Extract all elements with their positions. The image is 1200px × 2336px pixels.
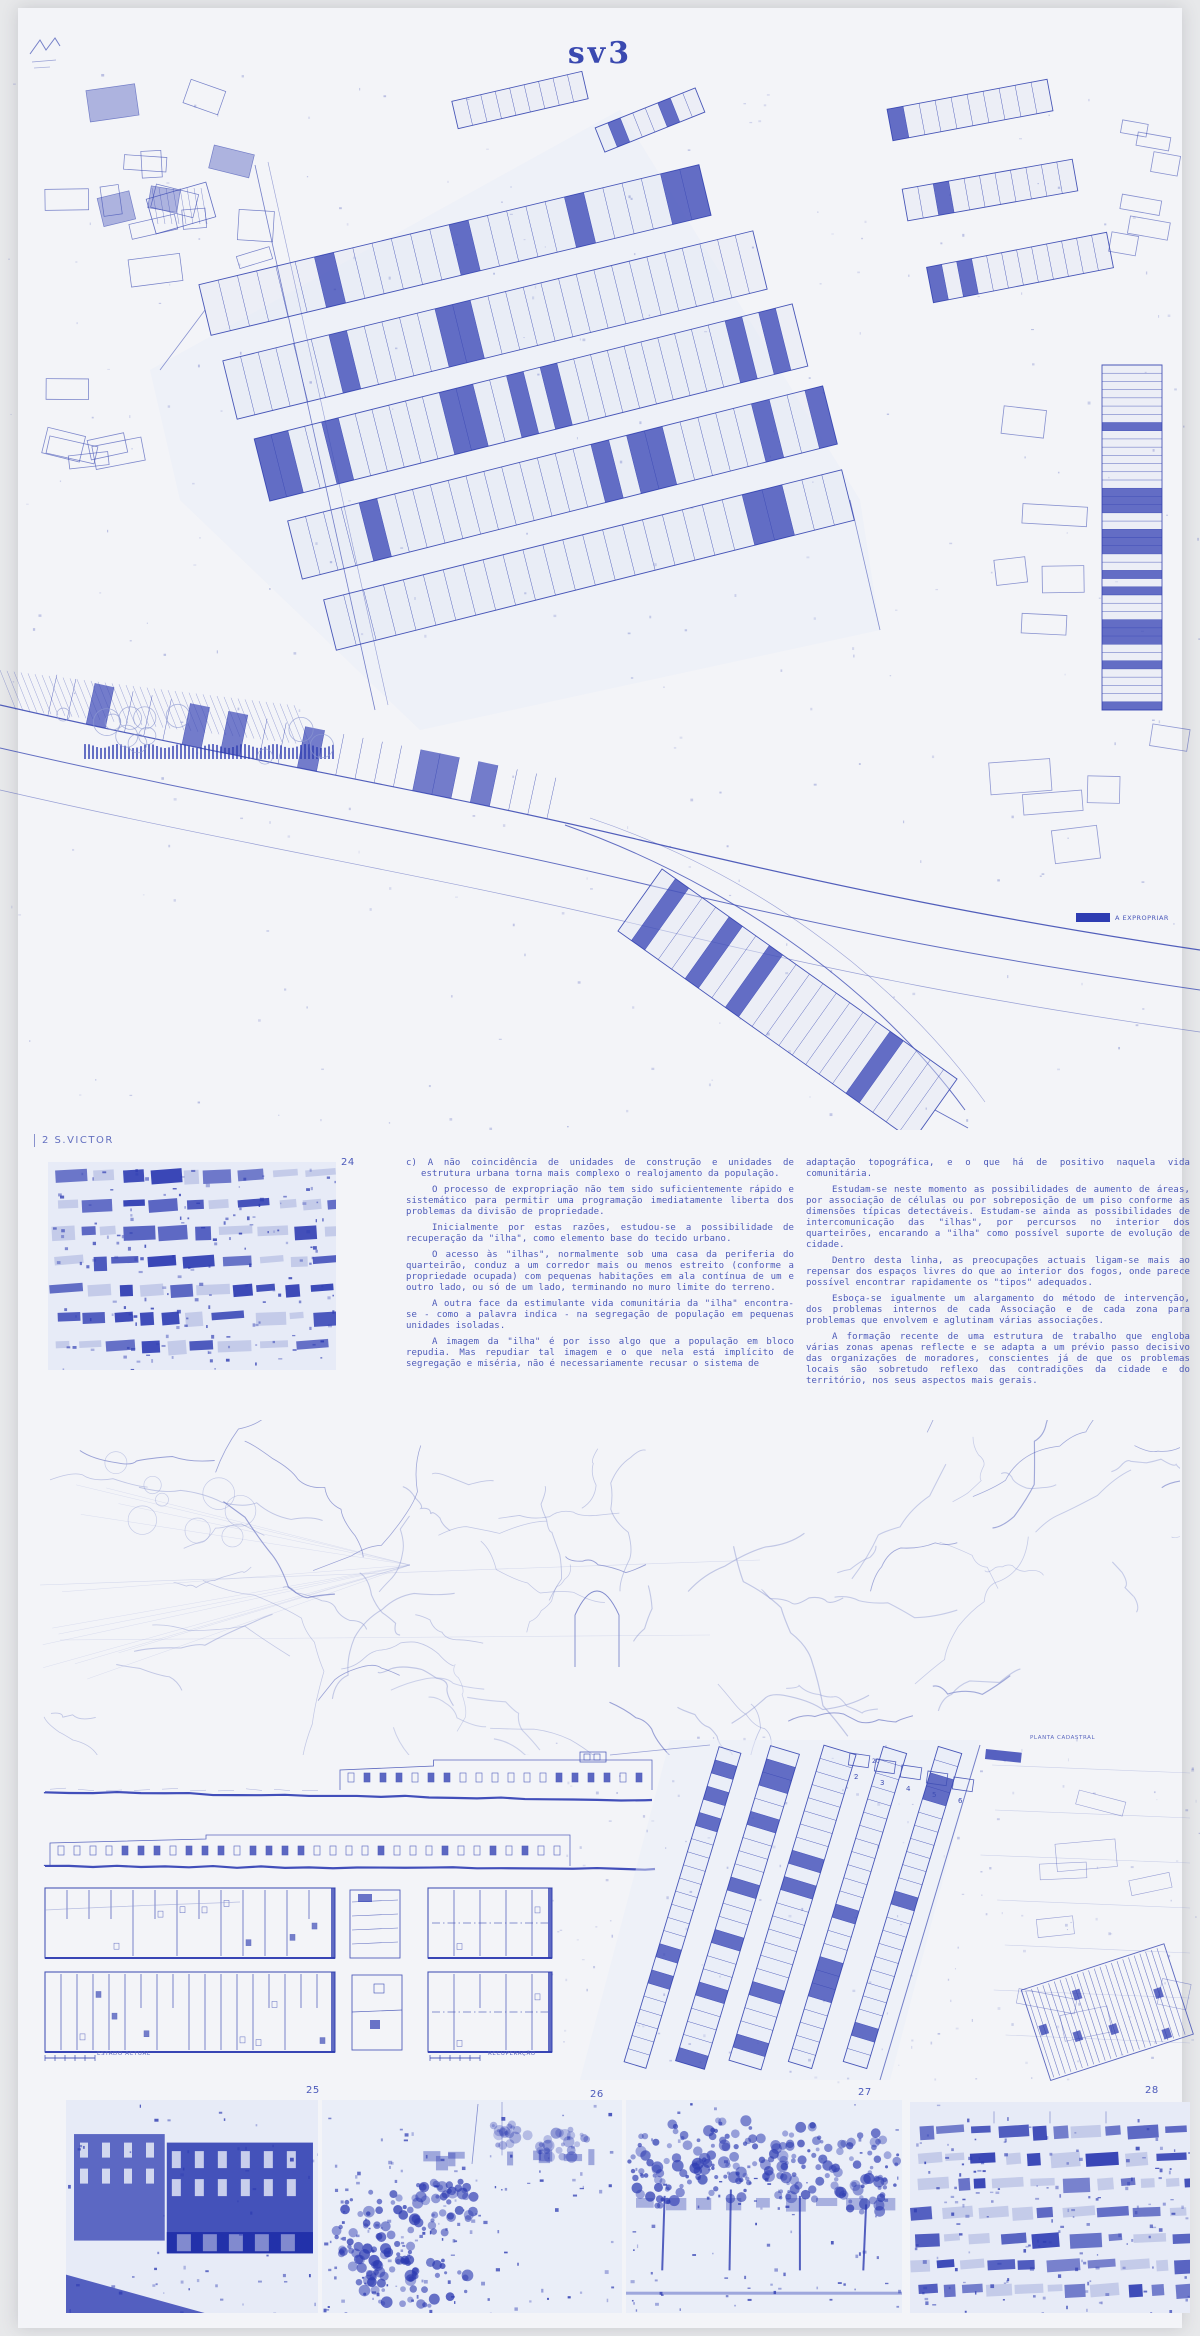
paragraph: Inicialmente por estas razões, estudou-s… [406, 1223, 794, 1245]
section-label: 2 S.VICTOR [34, 1134, 114, 1147]
svg-text:2: 2 [854, 1773, 858, 1781]
photo-24 [48, 1162, 336, 1370]
figure-number-27: 27 [858, 2087, 872, 2098]
plan-label-planta-cadastral: PLANTA CADASTRAL [1030, 1735, 1095, 1741]
text-column-1: c) A não coincidência de unidades de con… [406, 1158, 794, 1375]
paragraph: A formação recente de uma estrutura de t… [806, 1332, 1190, 1387]
paragraph: O processo de expropriação não tem sido … [406, 1185, 794, 1218]
figure-number-28: 28 [1145, 2085, 1159, 2096]
paragraph: c) A não coincidência de unidades de con… [406, 1158, 794, 1180]
plan-label-recuperacao: RECUPERAÇÃO [488, 2051, 536, 2057]
svg-text:5: 5 [932, 1791, 936, 1799]
paragraph: Dentro desta linha, as preocupações actu… [806, 1256, 1190, 1289]
legend-swatch [1076, 913, 1110, 922]
figure-number-24: 24 [341, 1157, 355, 1168]
plan-label-estado-actual: ESTADO ACTUAL [97, 2051, 151, 2057]
figure-number-26: 26 [590, 2089, 604, 2100]
svg-text:20: 20 [872, 1758, 880, 1765]
ilha-plans [40, 1880, 560, 2065]
page-title: sv3 [520, 36, 680, 71]
sketches-band [30, 1420, 1180, 1755]
paragraph: Estudam-se neste momento as possibilidad… [806, 1185, 1190, 1251]
legend-label: A EXPROPRIAR [1115, 914, 1169, 922]
site-plan-map [0, 70, 1200, 1130]
paragraph: A imagem da "ilha" é por isso algo que a… [406, 1337, 794, 1370]
paragraph: Esboça-se igualmente um alargamento do m… [806, 1294, 1190, 1327]
paragraph: O acesso às "ilhas", normalmente sob uma… [406, 1250, 794, 1294]
svg-text:3: 3 [880, 1779, 884, 1787]
photo-28 [910, 2102, 1190, 2313]
svg-text:4: 4 [906, 1785, 911, 1793]
map-legend: A EXPROPRIAR [1076, 913, 1169, 922]
figure-number-25: 25 [306, 2085, 320, 2096]
text-column-2: adaptação topográfica, e o que há de pos… [806, 1158, 1190, 1392]
photo-26 [322, 2100, 622, 2313]
photo-27 [626, 2100, 902, 2313]
paragraph: adaptação topográfica, e o que há de pos… [806, 1158, 1190, 1180]
cadastral-detail-plan: 2345620 [550, 1735, 1200, 2085]
photo-25 [66, 2100, 318, 2313]
paragraph: A outra face da estimulante vida comunit… [406, 1299, 794, 1332]
